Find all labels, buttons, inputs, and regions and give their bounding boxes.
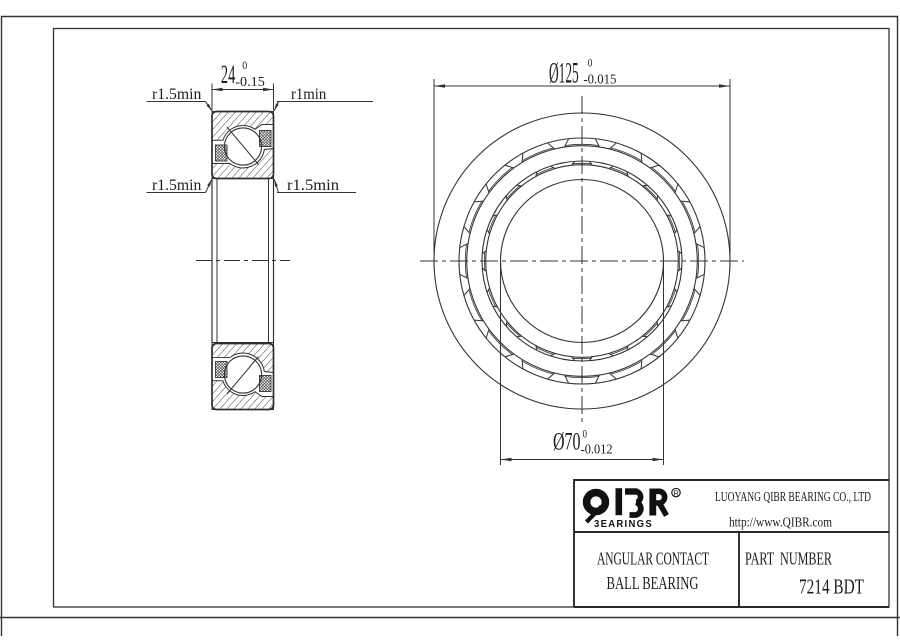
svg-text:r1min: r1min: [291, 86, 326, 103]
svg-text:-0.012: -0.012: [581, 443, 613, 458]
svg-text:LUOYANG QIBR BEARING CO., LTD: LUOYANG QIBR BEARING CO., LTD: [715, 490, 871, 505]
svg-text:R: R: [673, 488, 678, 497]
svg-text:0: 0: [588, 56, 593, 70]
svg-text:Ø125: Ø125: [549, 57, 579, 90]
svg-text:http://www.QIBR.com: http://www.QIBR.com: [729, 516, 832, 531]
svg-text:r1.5min: r1.5min: [152, 177, 201, 194]
svg-text:r1.5min: r1.5min: [152, 86, 201, 103]
svg-text:-0.15: -0.15: [235, 75, 264, 90]
svg-text:Ø70: Ø70: [553, 427, 581, 456]
svg-text:7214 BDT: 7214 BDT: [799, 575, 864, 599]
svg-text:PART NUMBER: PART NUMBER: [745, 549, 833, 569]
svg-text:-0.015: -0.015: [583, 73, 616, 88]
svg-text:0: 0: [242, 58, 247, 72]
svg-text:BALL BEARING: BALL BEARING: [607, 573, 699, 593]
svg-text:0: 0: [583, 427, 588, 441]
svg-text:3EARINGS: 3EARINGS: [594, 519, 653, 530]
svg-text:24: 24: [221, 59, 235, 89]
svg-text:r1.5min: r1.5min: [287, 177, 339, 194]
svg-text:ANGULAR CONTACT: ANGULAR CONTACT: [597, 549, 709, 569]
